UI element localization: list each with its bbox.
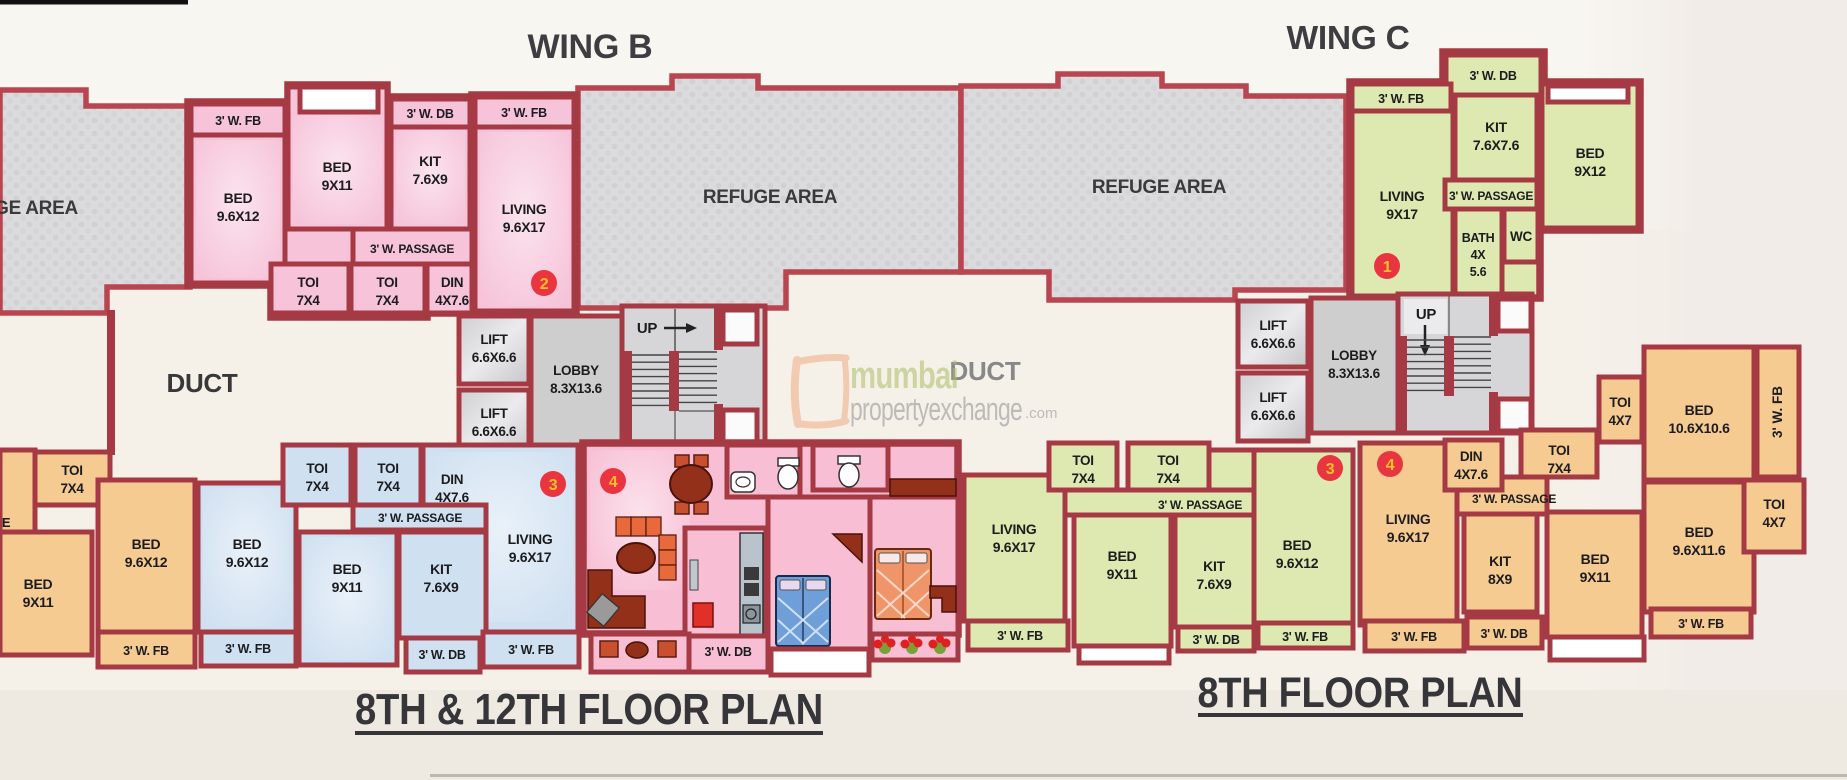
svg-text:GE AREA: GE AREA (0, 198, 78, 219)
svg-text:7X4: 7X4 (1071, 471, 1095, 486)
svg-text:9.6X12: 9.6X12 (226, 554, 269, 570)
svg-text:DUCT: DUCT (166, 368, 237, 398)
svg-text:7X4: 7X4 (60, 481, 84, 496)
svg-text:LIFT: LIFT (480, 332, 508, 347)
svg-text:6.6X6.6: 6.6X6.6 (1251, 408, 1296, 423)
svg-text:.com: .com (1025, 405, 1058, 422)
svg-text:REFUGE AREA: REFUGE AREA (703, 187, 838, 208)
svg-text:BED: BED (333, 561, 362, 577)
svg-text:3' W. FB: 3' W. FB (225, 642, 271, 656)
svg-text:WC: WC (1510, 229, 1532, 244)
svg-text:3' W. FB: 3' W. FB (1282, 630, 1328, 644)
svg-text:9X11: 9X11 (322, 177, 353, 193)
svg-text:9.6X17: 9.6X17 (503, 219, 546, 235)
svg-text:LIVING: LIVING (502, 201, 547, 217)
svg-text:KIT: KIT (1485, 119, 1507, 135)
svg-text:3' W. FB: 3' W. FB (508, 643, 554, 657)
svg-text:7X4: 7X4 (1156, 471, 1180, 486)
svg-text:TOI: TOI (376, 275, 397, 290)
svg-text:9.6X17: 9.6X17 (993, 539, 1036, 555)
svg-text:8.3X13.6: 8.3X13.6 (1328, 366, 1380, 381)
svg-text:TOI: TOI (1548, 443, 1569, 458)
svg-text:7X4: 7X4 (1547, 461, 1571, 476)
svg-text:6.6X6.6: 6.6X6.6 (1251, 336, 1296, 351)
svg-text:3' W. DB: 3' W. DB (1480, 627, 1527, 641)
svg-text:DIN: DIN (441, 275, 463, 290)
svg-text:TOI: TOI (1072, 453, 1093, 468)
svg-text:BED: BED (224, 190, 253, 206)
svg-text:9X11: 9X11 (23, 594, 54, 610)
svg-text:BED: BED (132, 536, 161, 552)
svg-text:BED: BED (233, 536, 262, 552)
svg-text:TOI: TOI (297, 275, 318, 290)
svg-text:WING B: WING B (528, 28, 653, 66)
svg-text:KIT: KIT (430, 561, 452, 577)
svg-text:LIVING: LIVING (508, 531, 553, 547)
svg-text:1: 1 (1383, 259, 1392, 276)
svg-text:3' W. PASSAGE: 3' W. PASSAGE (1472, 492, 1556, 506)
svg-text:BED: BED (24, 576, 53, 592)
svg-text:BED: BED (323, 159, 352, 175)
svg-text:BATH: BATH (1462, 231, 1495, 245)
svg-text:7.6X9: 7.6X9 (423, 579, 459, 595)
svg-text:LIFT: LIFT (480, 406, 508, 421)
svg-text:8TH & 12TH FLOOR PLAN: 8TH & 12TH FLOOR PLAN (355, 685, 823, 734)
svg-text:LIVING: LIVING (1380, 188, 1425, 204)
svg-text:KIT: KIT (1489, 553, 1511, 569)
svg-text:3' W. DB: 3' W. DB (1469, 69, 1516, 83)
svg-text:7X4: 7X4 (296, 293, 320, 308)
svg-text:9.6X17: 9.6X17 (509, 549, 552, 565)
svg-text:2: 2 (540, 276, 549, 293)
svg-text:3: 3 (1326, 461, 1335, 478)
svg-text:6.6X6.6: 6.6X6.6 (472, 350, 517, 365)
svg-text:9.6X12: 9.6X12 (125, 554, 168, 570)
svg-text:9X17: 9X17 (1386, 206, 1418, 222)
svg-text:7X4: 7X4 (305, 479, 329, 494)
svg-text:7.6X9: 7.6X9 (412, 171, 448, 187)
svg-text:9X12: 9X12 (1574, 163, 1606, 179)
svg-text:7.6X7.6: 7.6X7.6 (1473, 137, 1520, 153)
svg-text:10.6X10.6: 10.6X10.6 (1668, 420, 1730, 436)
svg-text:BED: BED (1576, 145, 1605, 161)
svg-text:propertyexchange: propertyexchange (850, 391, 1022, 427)
svg-text:9X11: 9X11 (1580, 569, 1611, 585)
svg-text:3' W. DB: 3' W. DB (406, 107, 453, 121)
svg-text:KIT: KIT (1203, 558, 1225, 574)
svg-text:3' W. DB: 3' W. DB (1192, 633, 1239, 647)
svg-text:3' W. PASSAGE: 3' W. PASSAGE (378, 511, 462, 525)
svg-text:TOI: TOI (306, 461, 327, 476)
svg-text:UP: UP (637, 320, 658, 337)
svg-text:4X7: 4X7 (1762, 515, 1785, 530)
svg-text:DIN: DIN (441, 472, 463, 487)
svg-text:3' W. FB: 3' W. FB (1678, 617, 1724, 631)
svg-text:3' W. FB: 3' W. FB (123, 644, 169, 658)
svg-text:4X7: 4X7 (1608, 413, 1631, 428)
svg-text:9.6X11.6: 9.6X11.6 (1673, 542, 1726, 558)
svg-text:6.6X6.6: 6.6X6.6 (472, 424, 517, 439)
svg-text:8TH FLOOR PLAN: 8TH FLOOR PLAN (1198, 669, 1523, 717)
svg-text:3' W. DB: 3' W. DB (704, 645, 751, 659)
svg-text:3' W. PASSAGE: 3' W. PASSAGE (370, 242, 454, 256)
svg-text:LOBBY: LOBBY (1331, 348, 1377, 363)
svg-text:3' W. FB: 3' W. FB (1391, 630, 1437, 644)
svg-text:WING C: WING C (1287, 19, 1410, 56)
svg-text:DIN: DIN (1460, 449, 1482, 464)
svg-text:3' W. FB: 3' W. FB (1378, 92, 1424, 106)
svg-text:4X7.6: 4X7.6 (1454, 467, 1489, 482)
svg-text:7.6X9: 7.6X9 (1196, 576, 1232, 592)
svg-text:3: 3 (549, 477, 558, 494)
svg-text:KIT: KIT (419, 153, 441, 169)
svg-text:9.6X12: 9.6X12 (217, 208, 260, 224)
svg-text:3' W. FB: 3' W. FB (501, 106, 547, 120)
svg-text:BED: BED (1283, 537, 1312, 553)
svg-text:9.6X17: 9.6X17 (1387, 529, 1430, 545)
svg-text:TOI: TOI (61, 463, 82, 478)
svg-text:4: 4 (1386, 457, 1395, 474)
svg-text:3' W. FB: 3' W. FB (1770, 386, 1785, 438)
svg-text:8.3X13.6: 8.3X13.6 (550, 381, 602, 396)
svg-text:9X11: 9X11 (332, 579, 363, 595)
svg-text:3' W. FB: 3' W. FB (215, 114, 261, 128)
svg-text:LIFT: LIFT (1259, 390, 1287, 405)
svg-text:BED: BED (1581, 551, 1610, 567)
svg-text:LIVING: LIVING (1386, 511, 1431, 527)
svg-text:9X11: 9X11 (1107, 566, 1138, 582)
svg-text:BED: BED (1685, 402, 1714, 418)
svg-text:TOI: TOI (1609, 395, 1630, 410)
svg-text:8X9: 8X9 (1488, 571, 1513, 587)
svg-text:TOI: TOI (377, 461, 398, 476)
svg-text:3' W. FB: 3' W. FB (997, 629, 1043, 643)
svg-text:LIVING: LIVING (992, 521, 1037, 537)
svg-text:3' W. PASSAGE: 3' W. PASSAGE (1158, 498, 1242, 512)
svg-text:7X4: 7X4 (375, 293, 399, 308)
svg-text:LIFT: LIFT (1259, 318, 1287, 333)
svg-text:9.6X12: 9.6X12 (1276, 555, 1319, 571)
svg-text:7X4: 7X4 (376, 479, 400, 494)
svg-text:BED: BED (1108, 548, 1137, 564)
svg-text:LOBBY: LOBBY (553, 363, 599, 378)
svg-text:BED: BED (1685, 524, 1714, 540)
svg-text:4X7.6: 4X7.6 (435, 293, 470, 308)
svg-text:REFUGE AREA: REFUGE AREA (1092, 177, 1227, 198)
svg-text:5.6: 5.6 (1470, 265, 1487, 279)
svg-text:E: E (2, 515, 11, 530)
svg-text:TOI: TOI (1157, 453, 1178, 468)
svg-text:3' W. DB: 3' W. DB (418, 648, 465, 662)
svg-text:UP: UP (1416, 306, 1437, 323)
svg-text:3' W. PASSAGE: 3' W. PASSAGE (1449, 189, 1533, 203)
svg-text:TOI: TOI (1763, 497, 1784, 512)
svg-text:DUCT: DUCT (949, 356, 1020, 386)
svg-text:4: 4 (609, 474, 618, 491)
svg-text:4X: 4X (1471, 248, 1487, 262)
